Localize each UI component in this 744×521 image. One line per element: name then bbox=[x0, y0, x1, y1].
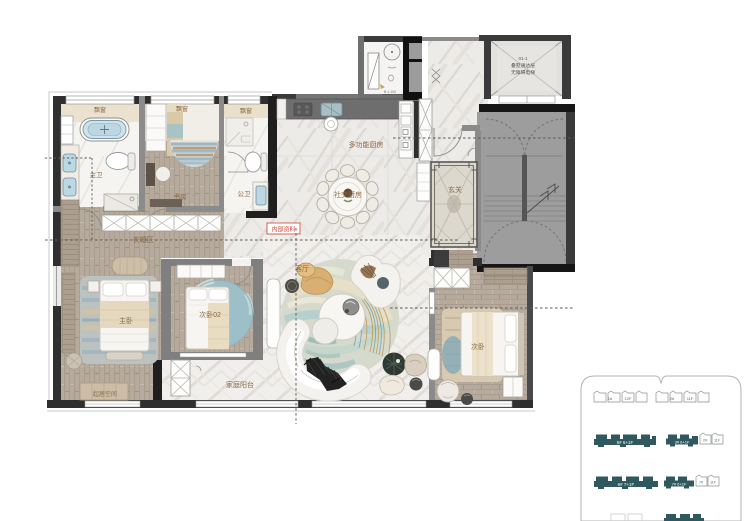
svg-text:家庭阳台: 家庭阳台 bbox=[226, 380, 254, 389]
svg-text:7#: 7# bbox=[699, 481, 703, 485]
svg-text:1#: 1# bbox=[608, 396, 613, 401]
svg-text:12F: 12F bbox=[625, 396, 632, 401]
svg-text:起居空间: 起居空间 bbox=[93, 390, 117, 398]
svg-text:主卫: 主卫 bbox=[90, 170, 104, 179]
svg-text:叠墅通达层: 叠墅通达层 bbox=[511, 62, 535, 69]
svg-text:客厅: 客厅 bbox=[295, 264, 309, 273]
svg-text:社交厨房: 社交厨房 bbox=[334, 190, 362, 199]
svg-text:2#: 2# bbox=[670, 396, 675, 401]
svg-text:多功能厨房: 多功能厨房 bbox=[349, 140, 384, 149]
svg-text:次卧: 次卧 bbox=[471, 342, 485, 351]
svg-text:5# 6+1F: 5# 6+1F bbox=[617, 440, 634, 445]
svg-text:2#: 2# bbox=[703, 439, 707, 443]
svg-text:书房: 书房 bbox=[174, 192, 187, 201]
svg-text:3# 6+1F: 3# 6+1F bbox=[675, 440, 690, 445]
svg-text:次卧02: 次卧02 bbox=[199, 310, 221, 319]
svg-text:01-1: 01-1 bbox=[518, 56, 528, 61]
svg-text:内部资料: 内部资料 bbox=[271, 226, 295, 234]
svg-text:11F: 11F bbox=[710, 481, 716, 485]
svg-text:飘窗: 飘窗 bbox=[240, 107, 252, 115]
svg-text:B 1:100: B 1:100 bbox=[384, 90, 396, 94]
svg-text:6# 7+1F: 6# 7+1F bbox=[618, 482, 635, 487]
svg-text:11F: 11F bbox=[714, 439, 720, 443]
svg-text:7# 6+1F: 7# 6+1F bbox=[672, 482, 687, 487]
svg-text:无障碍电梯: 无障碍电梯 bbox=[511, 69, 535, 76]
svg-text:飘窗: 飘窗 bbox=[94, 106, 106, 114]
svg-text:主卧: 主卧 bbox=[119, 316, 133, 325]
svg-text:玄关: 玄关 bbox=[448, 185, 462, 194]
svg-text:公卫: 公卫 bbox=[238, 190, 252, 198]
svg-text:飘窗: 飘窗 bbox=[176, 105, 188, 113]
svg-text:衣帽区: 衣帽区 bbox=[133, 235, 154, 244]
svg-text:11F: 11F bbox=[687, 396, 694, 401]
